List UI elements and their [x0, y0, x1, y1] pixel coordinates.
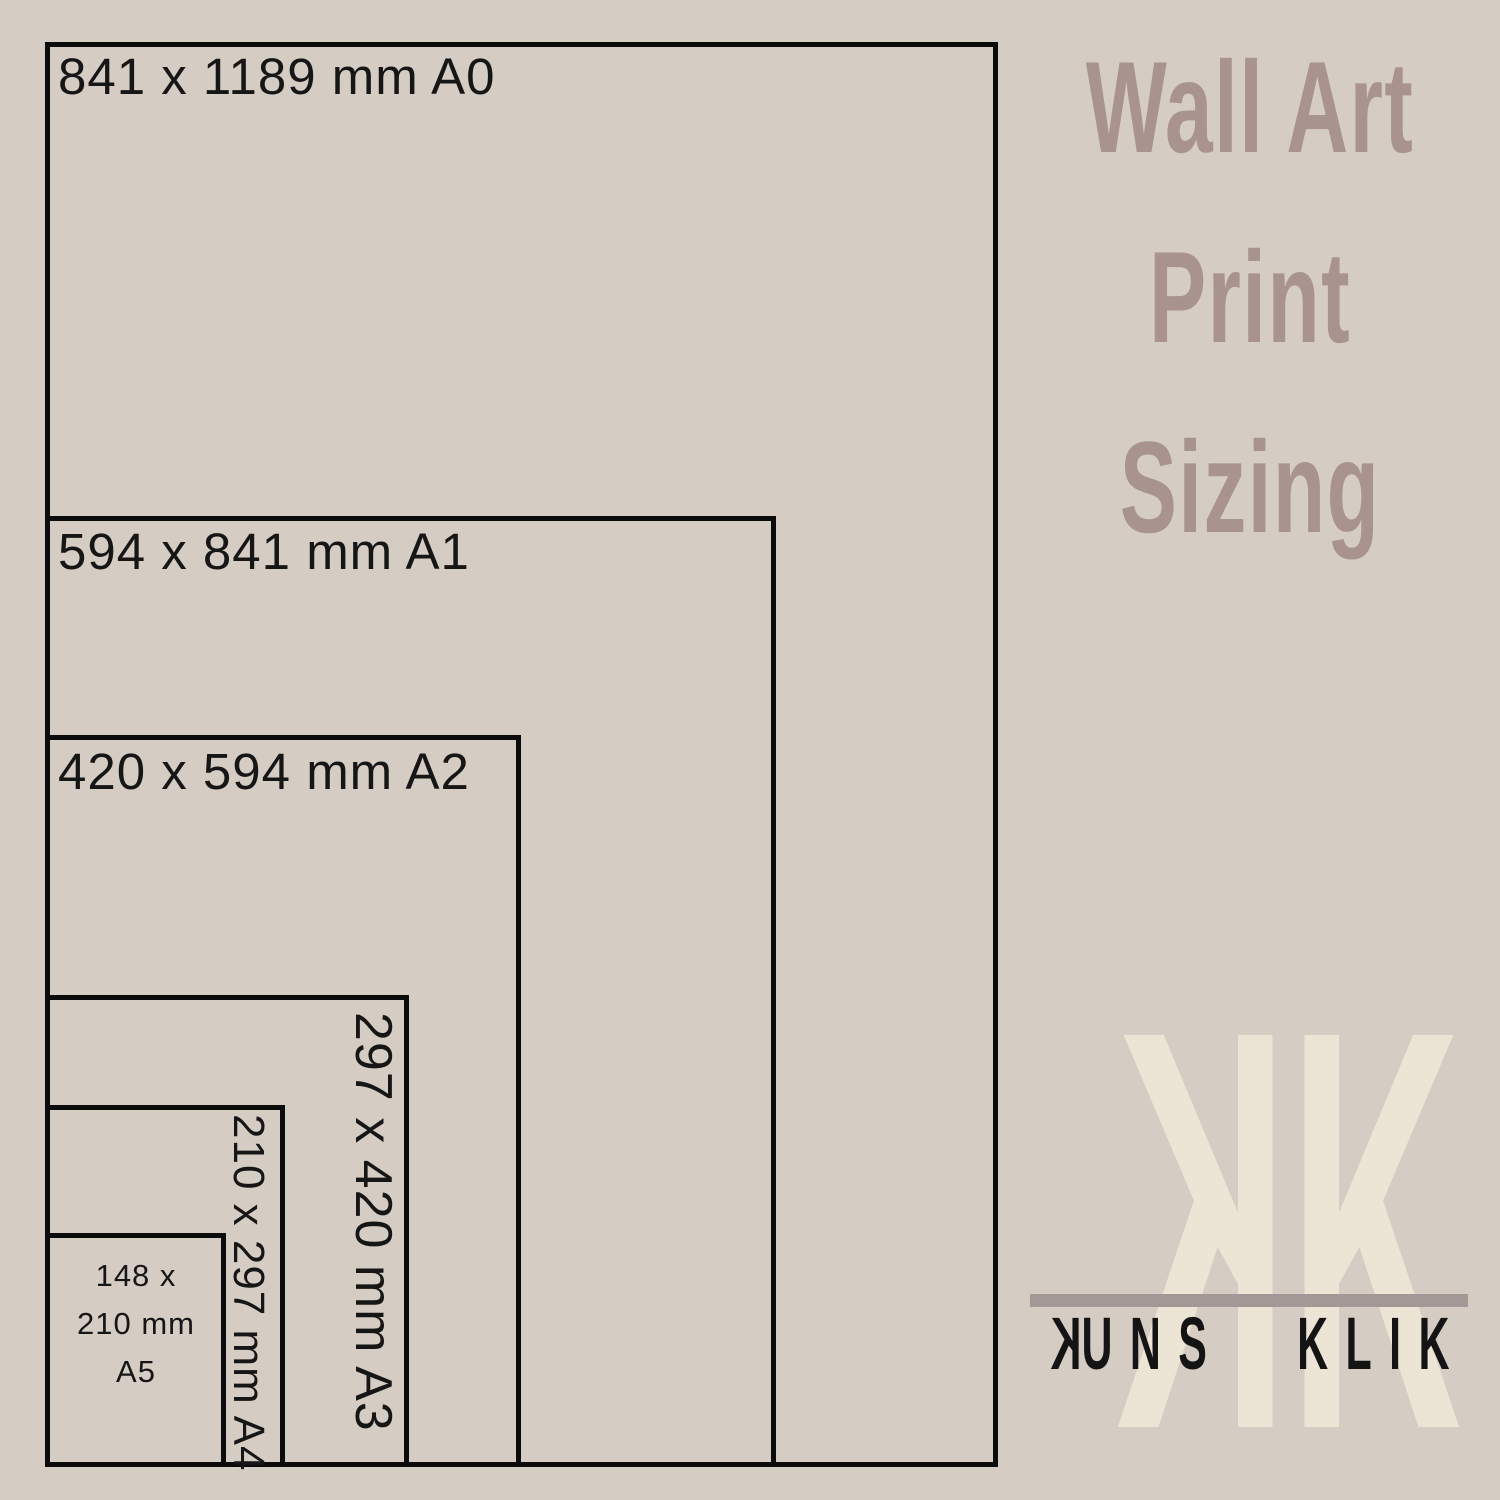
a5-size-label: 148 x 210 mm A5: [48, 1252, 224, 1396]
title-line-1: Wall Art: [1085, 12, 1415, 202]
monogram-letter-mirrored-k: K: [1082, 945, 1288, 1500]
brand-name: KUNS KLIK: [1018, 1307, 1482, 1381]
brand-name-rest: UNS KLIK: [1082, 1302, 1467, 1385]
a1-size-label: 594 x 841 mm A1: [58, 521, 470, 583]
title-line-2: Print: [1085, 202, 1415, 392]
title-line-3: Sizing: [1085, 392, 1415, 582]
brand-name-mirrored-k: K: [1033, 1307, 1081, 1381]
poster-canvas: 841 x 1189 mm A0 594 x 841 mm A1 420 x 5…: [0, 0, 1500, 1500]
a2-size-label: 420 x 594 mm A2: [58, 741, 470, 803]
a3-size-label: 297 x 420 mm A3: [344, 1012, 404, 1432]
brand-monogram: KK: [1082, 945, 1418, 1500]
page-title: Wall Art Print Sizing: [1000, 12, 1500, 582]
monogram-letter-k: K: [1288, 911, 1494, 1500]
a0-size-label: 841 x 1189 mm A0: [58, 46, 495, 108]
a4-size-label: 210 x 297 mm A4: [229, 1114, 279, 1471]
